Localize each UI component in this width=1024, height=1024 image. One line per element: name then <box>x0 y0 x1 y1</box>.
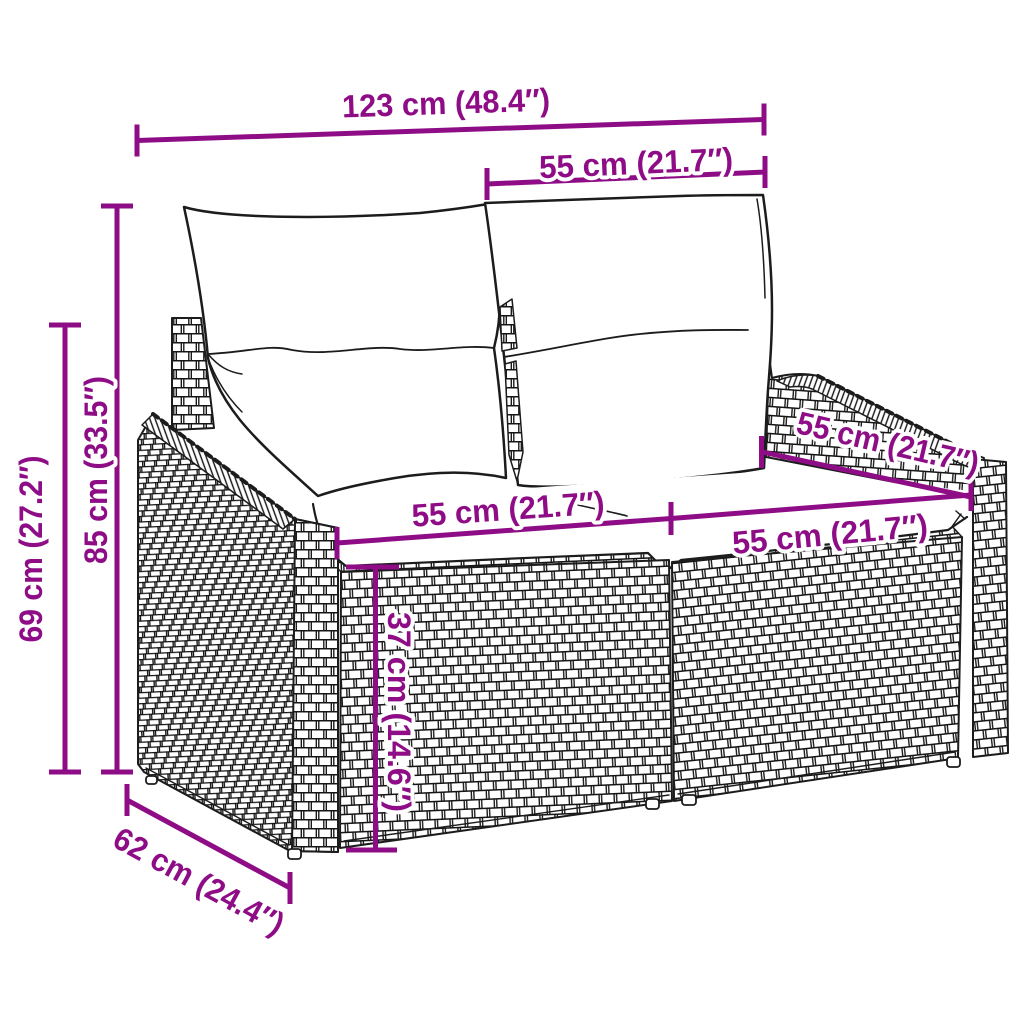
svg-text:37 cm (14.6″): 37 cm (14.6″) <box>381 612 417 812</box>
svg-text:69 cm (27.2″): 69 cm (27.2″) <box>13 456 49 643</box>
svg-text:123 cm (48.4″): 123 cm (48.4″) <box>341 82 550 125</box>
svg-text:85 cm (33.5″): 85 cm (33.5″) <box>78 376 114 564</box>
